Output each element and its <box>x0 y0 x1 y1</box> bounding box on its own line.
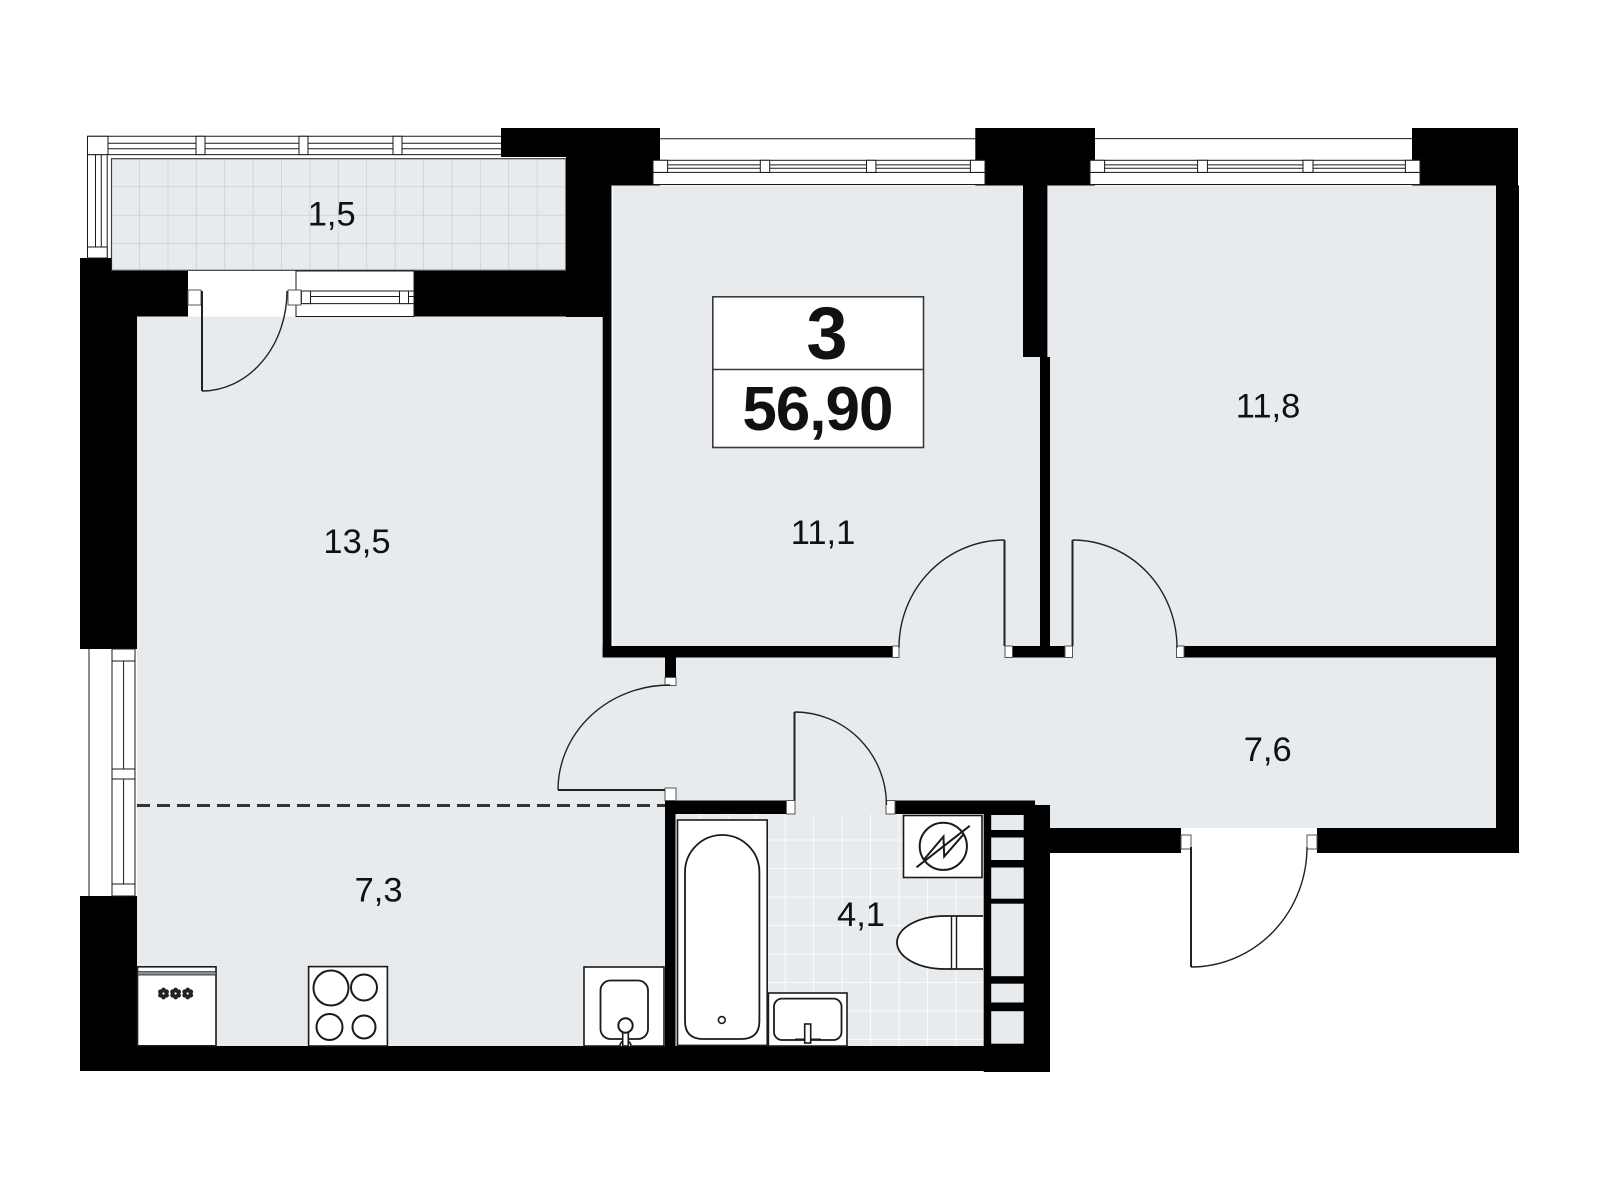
svg-text:7,3: 7,3 <box>355 872 403 910</box>
svg-text:13,5: 13,5 <box>323 523 390 561</box>
svg-text:56,90: 56,90 <box>742 375 892 444</box>
svg-text:3: 3 <box>806 292 847 375</box>
svg-text:1,5: 1,5 <box>308 196 356 234</box>
svg-text:11,1: 11,1 <box>791 514 856 552</box>
svg-text:4,1: 4,1 <box>837 896 885 934</box>
svg-text:7,6: 7,6 <box>1244 731 1292 769</box>
svg-text:11,8: 11,8 <box>1236 387 1301 425</box>
